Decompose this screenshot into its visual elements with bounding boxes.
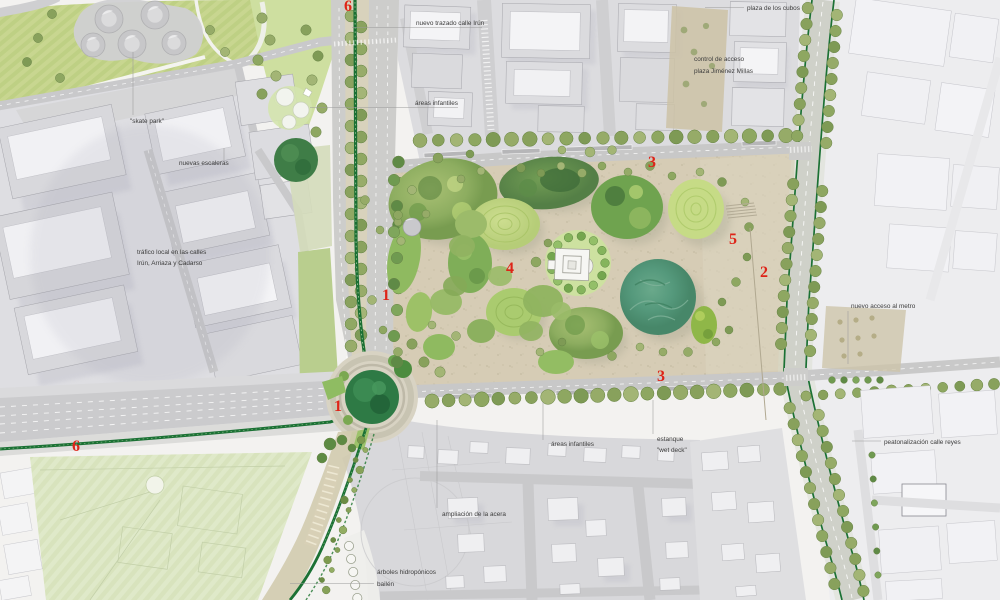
svg-text:1: 1: [334, 398, 342, 415]
svg-text:Irún, Arriaza y Cadarso: Irún, Arriaza y Cadarso: [137, 260, 203, 267]
svg-text:plaza de los cubos: plaza de los cubos: [747, 5, 800, 12]
svg-text:estanque: estanque: [657, 436, 684, 443]
svg-text:control de acceso: control de acceso: [694, 56, 745, 63]
svg-text:6: 6: [72, 438, 80, 455]
svg-text:peatonalización calle reyes: peatonalización calle reyes: [884, 439, 961, 446]
svg-text:4: 4: [506, 260, 514, 277]
svg-text:1: 1: [382, 287, 390, 304]
svg-text:"skate park": "skate park": [130, 118, 164, 125]
svg-text:árboles hidropónicos: árboles hidropónicos: [377, 569, 436, 576]
svg-text:2: 2: [760, 264, 768, 281]
svg-text:tráfico local en las calles: tráfico local en las calles: [137, 249, 206, 256]
svg-text:nuevo trazado calle Irún: nuevo trazado calle Irún: [416, 20, 485, 27]
svg-text:5: 5: [729, 231, 737, 248]
svg-text:3: 3: [648, 154, 656, 171]
svg-text:nuevo acceso al metro: nuevo acceso al metro: [851, 303, 916, 310]
svg-text:áreas infantiles: áreas infantiles: [415, 100, 458, 107]
svg-text:3: 3: [657, 368, 665, 385]
svg-text:nuevas escaleras: nuevas escaleras: [179, 160, 229, 167]
svg-text:plaza Jiménez Millas: plaza Jiménez Millas: [694, 68, 753, 75]
svg-text:ampliación de la acera: ampliación de la acera: [442, 511, 506, 518]
svg-text:6: 6: [344, 0, 352, 15]
svg-text:bailén: bailén: [377, 581, 395, 588]
svg-text:"wet deck": "wet deck": [657, 447, 687, 454]
svg-text:áreas infantiles: áreas infantiles: [551, 441, 594, 448]
